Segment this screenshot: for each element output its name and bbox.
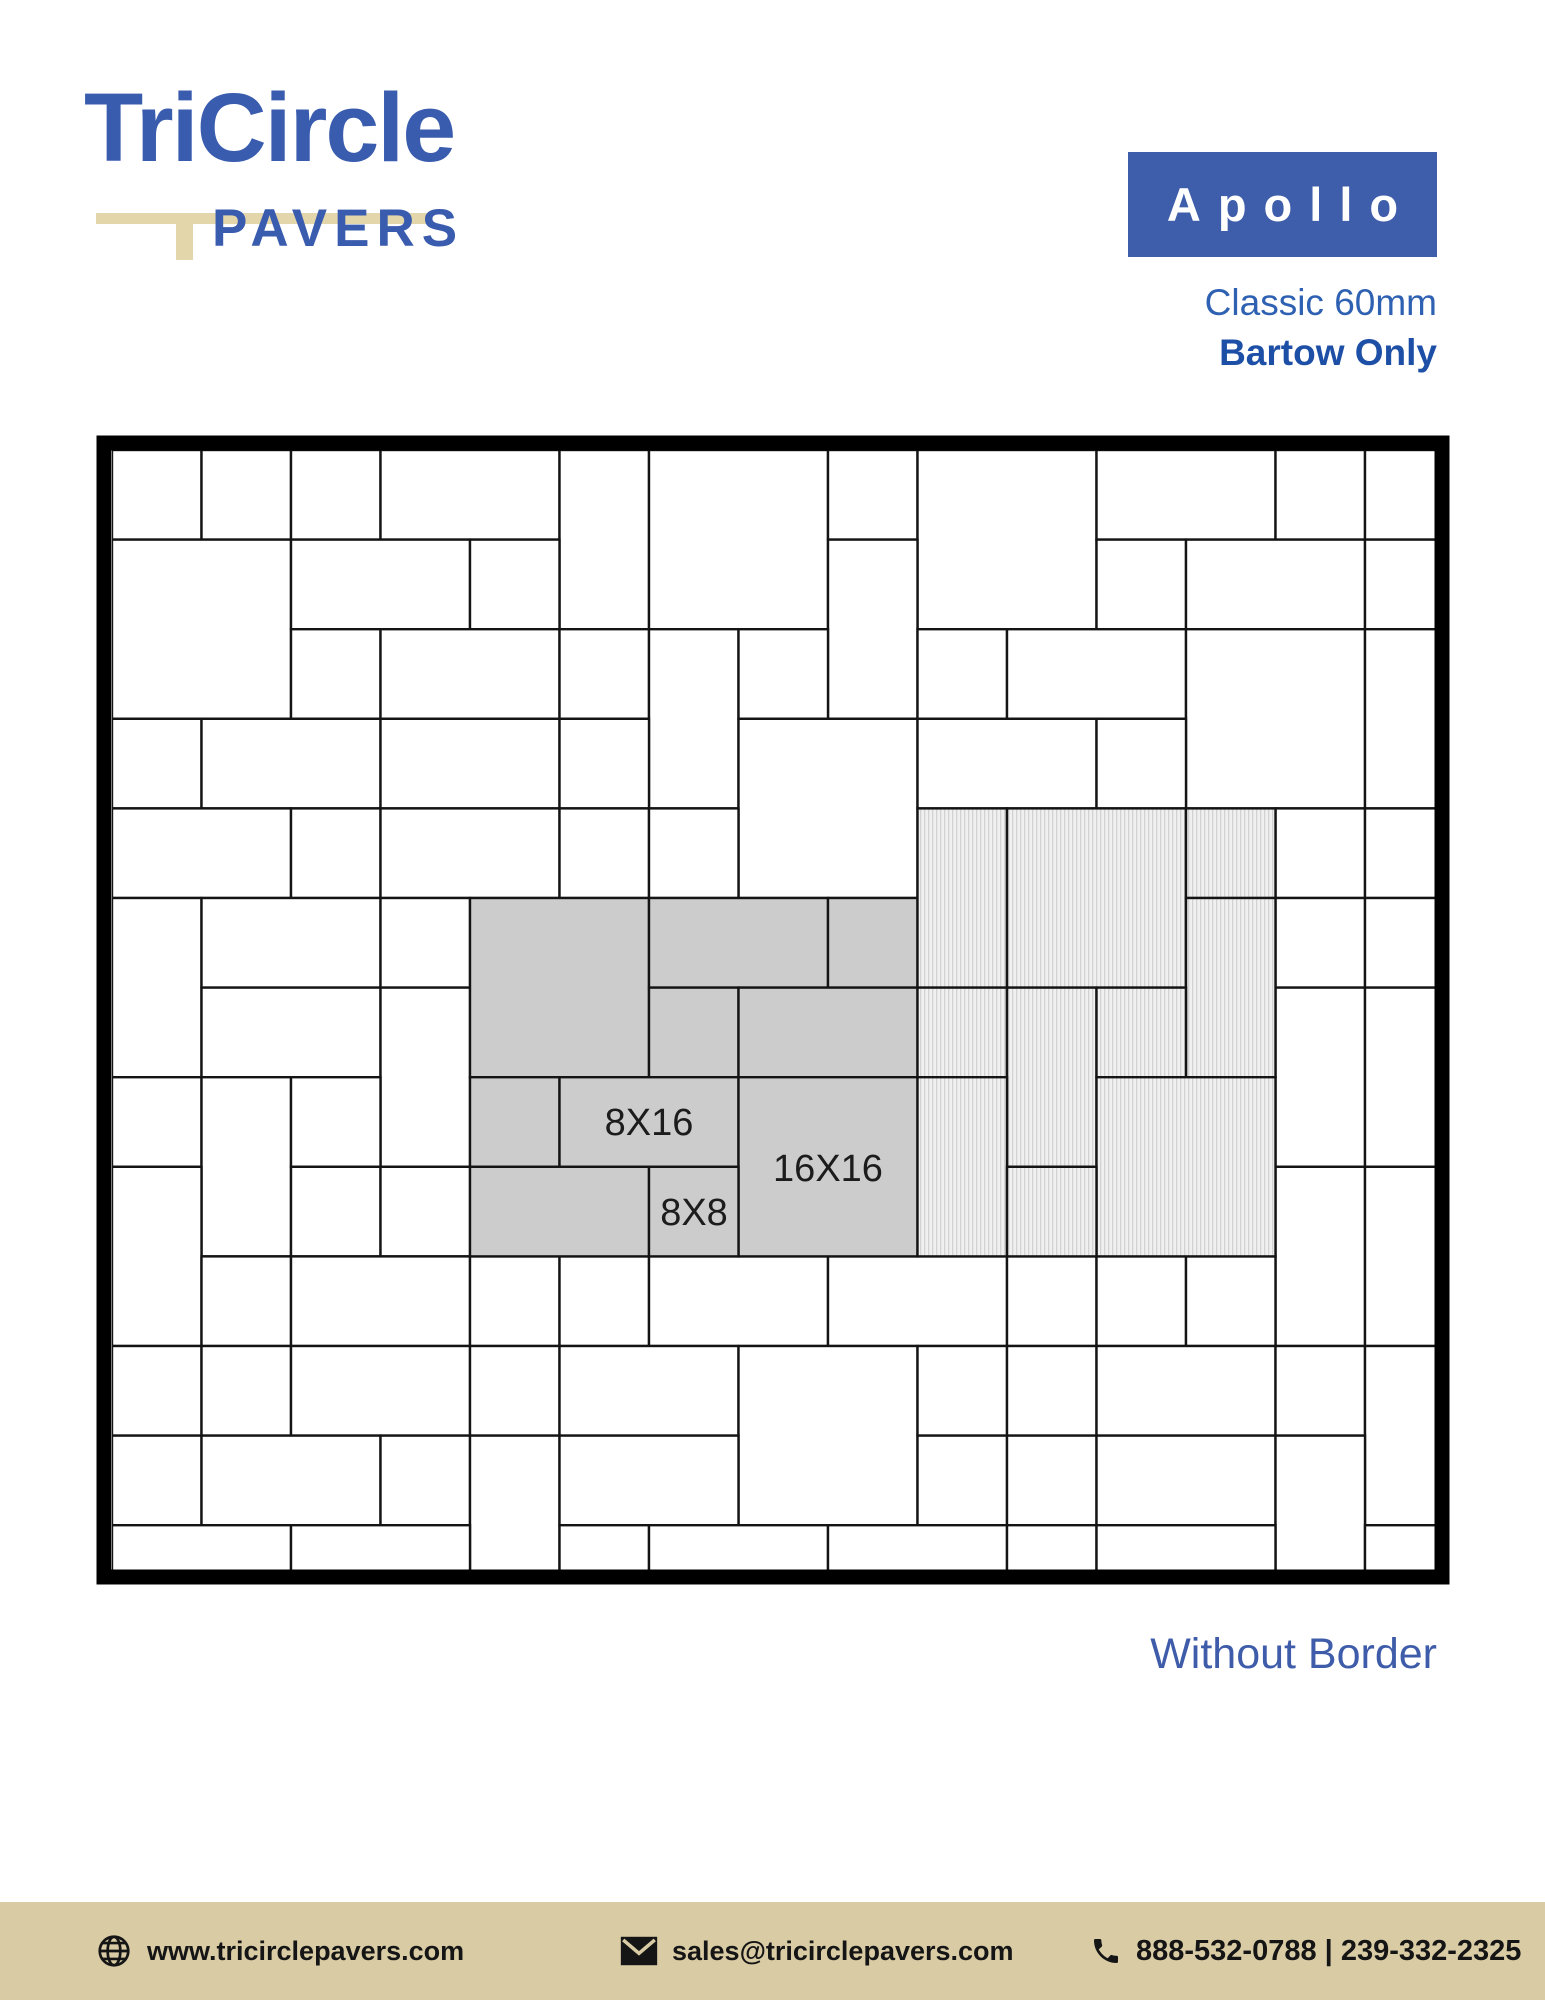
paver-tile (112, 540, 291, 719)
paver-tile (381, 1167, 471, 1257)
footer-phone-text[interactable]: 888-532-0788 | 239-332-2325 (1136, 1935, 1521, 1968)
paver-tile (112, 719, 202, 809)
paver-tile (828, 898, 918, 988)
paver-tile (1097, 1077, 1276, 1256)
paver-tile (202, 719, 381, 809)
paver-tile (470, 1167, 649, 1257)
paver-tile (649, 1256, 828, 1346)
paver-tile (112, 808, 291, 898)
paver-pattern-diagram: 8X1616X168X8 (0, 0, 1545, 2000)
paver-tile (918, 1077, 1008, 1256)
paver-tile (291, 629, 381, 719)
paver-size-label: 8X16 (605, 1102, 694, 1144)
paver-tile (560, 1436, 739, 1526)
paver-tile (291, 1346, 470, 1436)
paver-tile (291, 1256, 470, 1346)
paver-tile (381, 1436, 471, 1526)
paver-tile (381, 808, 560, 898)
paver-tile (291, 540, 470, 630)
paver-tile (1186, 898, 1276, 1077)
paver-tile (202, 898, 381, 988)
paver-tile (739, 719, 918, 898)
paver-tile (1097, 988, 1187, 1078)
paver-tile (918, 629, 1008, 719)
paver-tile (918, 719, 1097, 809)
paver-tile (828, 1256, 1007, 1346)
paver-tile (291, 808, 381, 898)
paver-tile (112, 1436, 202, 1526)
paver-tile (381, 719, 560, 809)
paver-tile (1007, 1167, 1097, 1257)
paver-tile (560, 1346, 739, 1436)
paver-tile (470, 1077, 560, 1167)
paver-tile (1276, 898, 1366, 988)
paver-tile (470, 1256, 560, 1346)
paver-tile (470, 1436, 560, 1615)
paver-tile (291, 1077, 381, 1167)
paver-tile (381, 450, 560, 540)
paver-tile (560, 1256, 650, 1346)
paver-tile (649, 808, 739, 898)
paver-tile (739, 988, 918, 1078)
paver-tile (1276, 450, 1366, 540)
paver-tile (470, 540, 560, 630)
paver-tile (381, 988, 471, 1167)
paver-tile (1186, 629, 1365, 808)
paver-tile (202, 988, 381, 1078)
envelope-icon (620, 1936, 658, 1966)
paver-tile (1007, 808, 1186, 987)
paver-tile (202, 1077, 292, 1256)
paver-tile (112, 450, 202, 540)
paver-tile (1007, 1346, 1097, 1436)
paver-size-label: 8X8 (660, 1192, 728, 1234)
paver-tile (202, 450, 292, 540)
footer-phone: 888-532-0788 | 239-332-2325 (1090, 1902, 1521, 2000)
paver-tile (1276, 988, 1366, 1167)
paver-tile (560, 808, 650, 898)
paver-tile (112, 1167, 202, 1346)
paver-tile (112, 1077, 202, 1167)
paver-tile (739, 1346, 918, 1525)
paver-tile (1186, 1256, 1276, 1346)
spec-sheet-page: TriCircle PAVERS Apollo Classic 60mm Bar… (0, 0, 1545, 2000)
paver-tile (291, 1167, 381, 1257)
footer-email-text[interactable]: sales@tricirclepavers.com (672, 1936, 1014, 1967)
paver-tile (560, 719, 650, 809)
paver-tile (1276, 808, 1366, 898)
paver-tile (560, 629, 650, 719)
phone-icon (1090, 1935, 1122, 1967)
footer-bar: www.tricirclepavers.com sales@tricirclep… (0, 1902, 1545, 2000)
paver-tile (1007, 988, 1097, 1167)
paver-tile (1097, 1346, 1276, 1436)
paver-tile (1007, 1436, 1097, 1526)
paver-tile (381, 898, 471, 988)
paver-tile (1186, 540, 1365, 630)
paver-tile (649, 450, 828, 629)
paver-tile (1276, 1167, 1366, 1346)
paver-tile (1186, 808, 1276, 898)
paver-tile (381, 629, 560, 719)
paver-tile (1097, 450, 1276, 540)
footer-website-text[interactable]: www.tricirclepavers.com (147, 1936, 464, 1967)
footer-website: www.tricirclepavers.com (95, 1902, 464, 2000)
paver-tile (1097, 540, 1187, 630)
paver-tile (1276, 1436, 1366, 1615)
paver-tile (112, 898, 202, 1077)
globe-icon (95, 1932, 133, 1970)
paver-tile (1097, 1256, 1187, 1346)
diagram-caption: Without Border (937, 1630, 1437, 1679)
paver-tile (560, 450, 650, 629)
paver-tile (202, 1436, 381, 1526)
paver-tile (1276, 1346, 1366, 1436)
paver-tile (918, 1346, 1008, 1436)
paver-tile (649, 988, 739, 1078)
paver-tile (649, 629, 739, 808)
paver-tile (918, 808, 1008, 987)
paver-tile (202, 1346, 292, 1436)
paver-tile (470, 898, 649, 1077)
paver-tile (918, 988, 1008, 1078)
paver-tile (112, 1346, 202, 1436)
paver-tile (739, 629, 829, 719)
paver-tile (828, 450, 918, 540)
paver-tile (828, 540, 918, 719)
paver-tile (291, 450, 381, 540)
paver-tile (1097, 1436, 1276, 1526)
paver-tile (470, 1346, 560, 1436)
footer-email: sales@tricirclepavers.com (620, 1902, 1014, 2000)
paver-tile (918, 450, 1097, 629)
paver-tile (1007, 1256, 1097, 1346)
paver-tile (202, 1256, 292, 1346)
paver-tile (649, 898, 828, 988)
paver-tile (1097, 719, 1187, 809)
paver-tile (1007, 629, 1186, 719)
paver-size-label: 16X16 (773, 1148, 883, 1190)
paver-tile (918, 1436, 1008, 1526)
